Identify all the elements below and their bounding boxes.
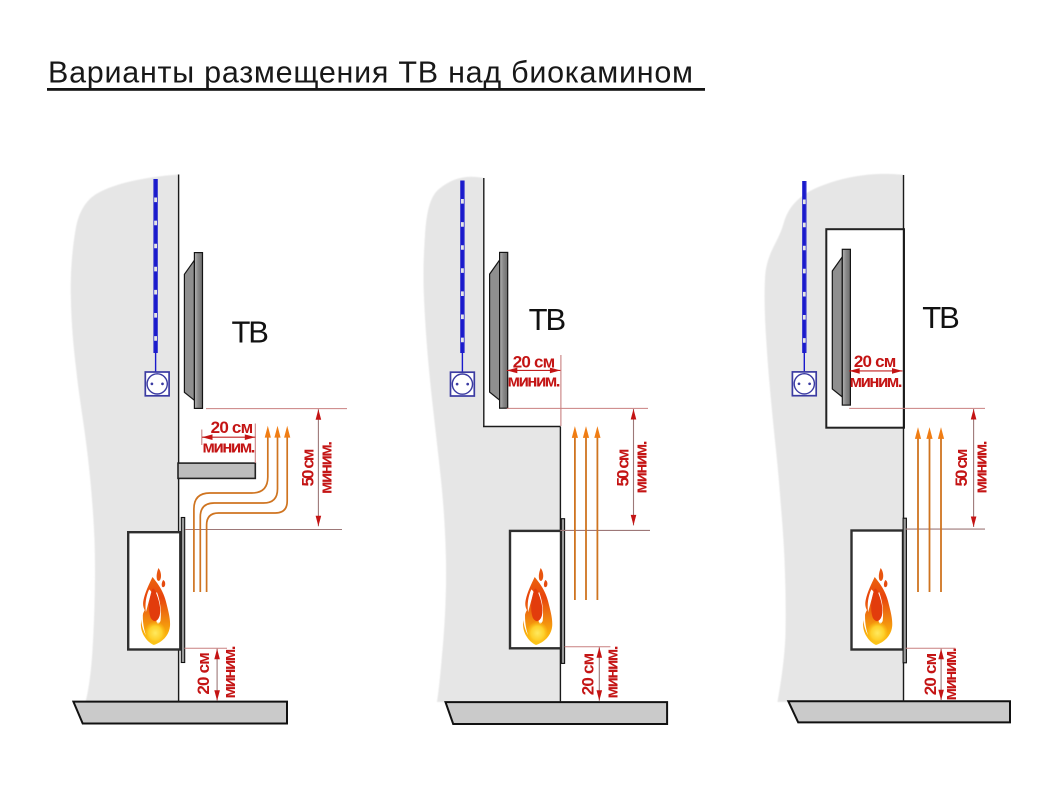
svg-text:миним.: миним. [220,646,239,699]
svg-text:20 см: 20 см [513,353,556,372]
svg-text:50 см: 50 см [299,449,318,487]
svg-text:ТВ: ТВ [231,315,269,350]
svg-text:50 см: 50 см [952,449,971,487]
svg-text:20 см: 20 см [578,653,597,696]
svg-text:20 см: 20 см [211,418,254,437]
svg-text:миним.: миним. [941,648,960,701]
svg-text:миним.: миним. [971,441,990,494]
svg-text:ТВ: ТВ [529,302,567,337]
svg-text:Варианты размещения ТВ над био: Варианты размещения ТВ над биокамином [48,56,693,90]
svg-text:20 см: 20 см [194,652,213,695]
svg-text:50 см: 50 см [613,449,632,487]
svg-text:миним.: миним. [317,441,336,494]
svg-text:ТВ: ТВ [922,300,960,335]
svg-text:20 см: 20 см [854,352,897,371]
svg-text:миним.: миним. [631,441,650,494]
svg-text:миним.: миним. [202,438,255,457]
svg-text:миним.: миним. [603,646,622,699]
svg-text:миним.: миним. [850,372,903,391]
svg-text:миним.: миним. [508,371,561,390]
svg-text:20 см: 20 см [921,653,940,696]
